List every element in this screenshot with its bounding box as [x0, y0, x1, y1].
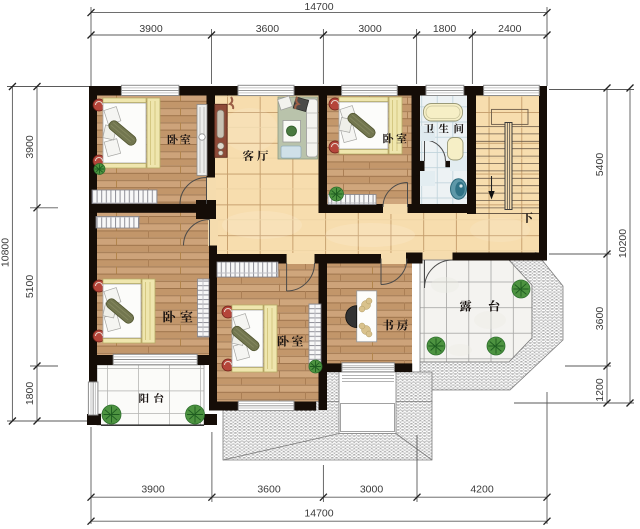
- svg-text:5100: 5100: [24, 275, 36, 299]
- svg-text:1800: 1800: [24, 382, 36, 406]
- svg-text:1200: 1200: [594, 378, 606, 402]
- svg-text:14700: 14700: [304, 508, 333, 520]
- svg-text:1800: 1800: [433, 23, 457, 35]
- svg-text:3600: 3600: [594, 307, 606, 331]
- svg-text:10200: 10200: [617, 229, 629, 258]
- svg-text:3000: 3000: [360, 484, 384, 496]
- svg-text:2400: 2400: [498, 23, 522, 35]
- svg-text:3900: 3900: [24, 135, 36, 159]
- svg-text:3600: 3600: [256, 23, 280, 35]
- svg-text:10800: 10800: [0, 238, 12, 267]
- svg-text:4200: 4200: [470, 484, 494, 496]
- svg-text:5400: 5400: [594, 153, 606, 177]
- svg-text:3000: 3000: [358, 23, 382, 35]
- svg-text:3900: 3900: [141, 484, 165, 496]
- svg-text:14700: 14700: [304, 1, 333, 13]
- svg-text:3900: 3900: [139, 23, 163, 35]
- svg-text:3600: 3600: [257, 484, 281, 496]
